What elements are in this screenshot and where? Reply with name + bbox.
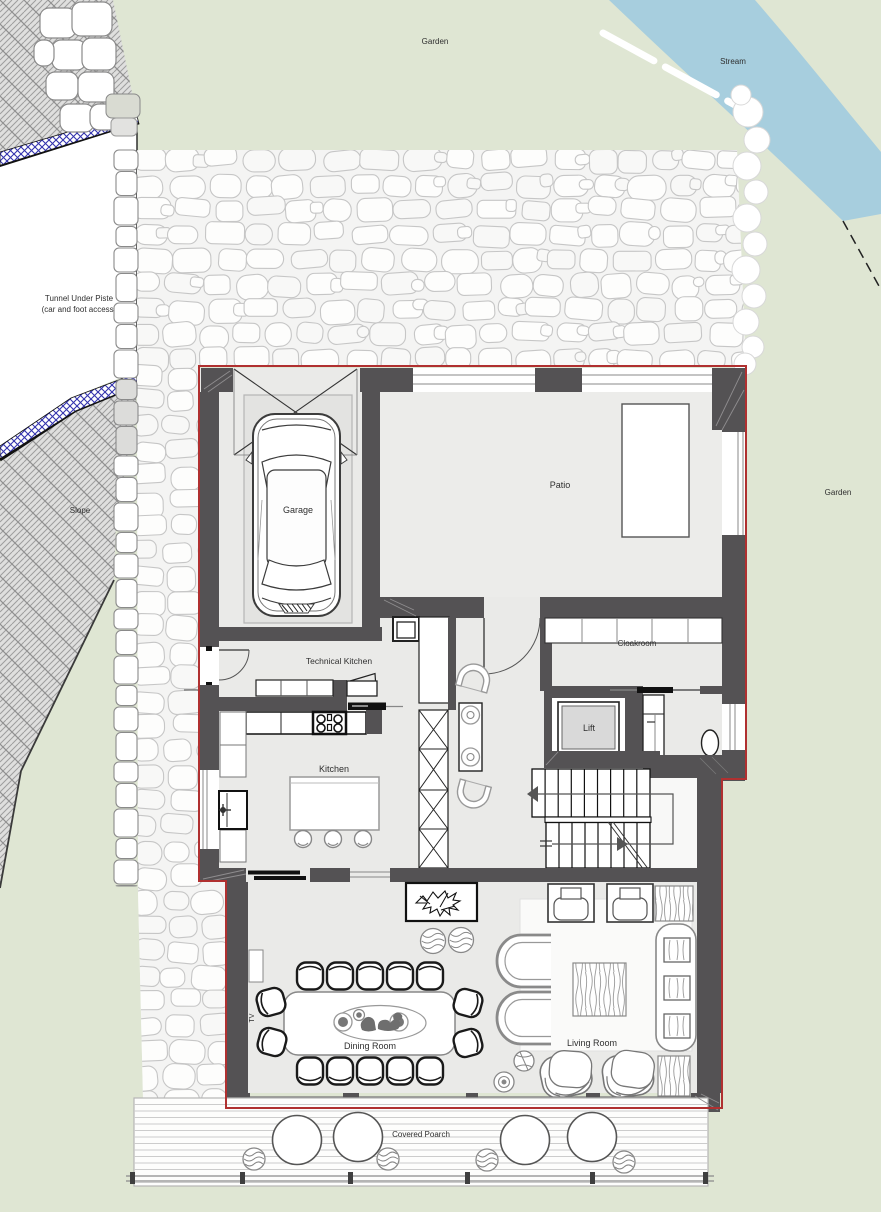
svg-text:Covered Poarch: Covered Poarch [392, 1130, 450, 1139]
svg-text:Living Room: Living Room [567, 1038, 617, 1048]
svg-text:Cloakroom: Cloakroom [618, 639, 657, 648]
svg-text:Stream: Stream [720, 57, 746, 66]
svg-text:Technical Kitchen: Technical Kitchen [306, 656, 372, 666]
svg-text:Tunnel Under Piste: Tunnel Under Piste [45, 294, 114, 303]
svg-text:Kitchen: Kitchen [319, 764, 349, 774]
svg-text:(car and foot access): (car and foot access) [42, 305, 117, 314]
svg-text:Lift: Lift [583, 723, 596, 733]
svg-text:TV: TV [249, 1013, 256, 1022]
svg-text:Patio: Patio [550, 480, 571, 490]
svg-text:Garden: Garden [422, 37, 449, 46]
svg-text:Garage: Garage [283, 505, 313, 515]
svg-text:Garden: Garden [825, 488, 852, 497]
svg-text:Slope: Slope [70, 506, 91, 515]
svg-text:Dining Room: Dining Room [344, 1041, 396, 1051]
